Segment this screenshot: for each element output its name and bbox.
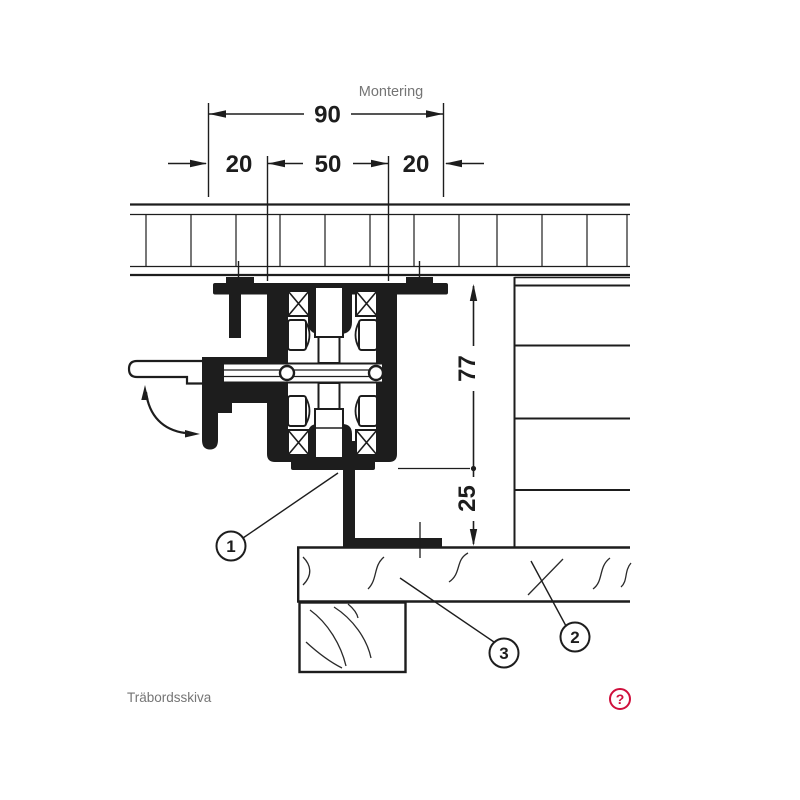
extension-lines: [209, 103, 444, 283]
roller-bottom-left: [288, 396, 306, 426]
carriage-bottom-plate: [291, 458, 375, 470]
callout-2-label: 2: [570, 628, 579, 647]
callout-3: 3: [490, 639, 519, 668]
lever-rotation-arrow: [141, 385, 200, 438]
dim-width-right: 20: [403, 151, 430, 178]
dim-height-upper: 77: [454, 355, 481, 382]
callout-1: 1: [217, 532, 246, 561]
help-icon-label: ?: [616, 691, 625, 707]
roller-bottom-right: [359, 396, 377, 426]
hanger-bolt-neck-lower: [319, 383, 340, 409]
dim-width-left: 20: [226, 151, 253, 178]
hanger-bolt-nut: [315, 409, 343, 458]
callout-3-label: 3: [499, 644, 508, 663]
adjusting-spindle: [223, 364, 383, 383]
help-icon[interactable]: ?: [610, 689, 630, 709]
dim-height-lower: 25: [454, 485, 481, 512]
spindle-pin-left: [280, 366, 294, 380]
fitting-white-parts: [223, 287, 383, 458]
wood-lower-board: [300, 603, 406, 673]
mounting-clip-right: [406, 277, 433, 284]
callout-1-label: 1: [226, 537, 235, 556]
callout-2: 2: [561, 623, 590, 652]
dim-width-center: 50: [315, 151, 342, 178]
diagram-title: Montering: [359, 84, 423, 100]
suspension-screw: [229, 294, 241, 338]
caption-traebordsskiva: Träbordsskiva: [127, 690, 212, 705]
mounting-diagram-page: 90 20 50 20 77 25 Montering: [0, 0, 800, 800]
hanger-bolt-top: [315, 287, 343, 337]
hanger-bolt-neck-upper: [319, 337, 340, 363]
dim-width-total: 90: [314, 102, 341, 129]
hanger-bolt-lower: [343, 470, 355, 538]
mounting-foot: [343, 538, 442, 548]
mounting-clip-left: [226, 277, 254, 284]
vertical-dimensions: 77 25: [398, 284, 481, 546]
release-lever: [129, 361, 206, 384]
spindle-pin-right: [369, 366, 383, 380]
panel-core-hatch: [146, 215, 627, 266]
roller-top-right: [359, 320, 377, 350]
mounting-diagram: 90 20 50 20 77 25 Montering: [0, 0, 800, 800]
dimension-junction-dot: [471, 466, 476, 471]
top-panel-section: [130, 205, 630, 276]
roller-top-left: [288, 320, 306, 350]
wood-table-top-section: [297, 547, 631, 672]
right-panel-section: [515, 277, 631, 547]
horizontal-dimensions: 90 20 50 20: [168, 102, 484, 284]
